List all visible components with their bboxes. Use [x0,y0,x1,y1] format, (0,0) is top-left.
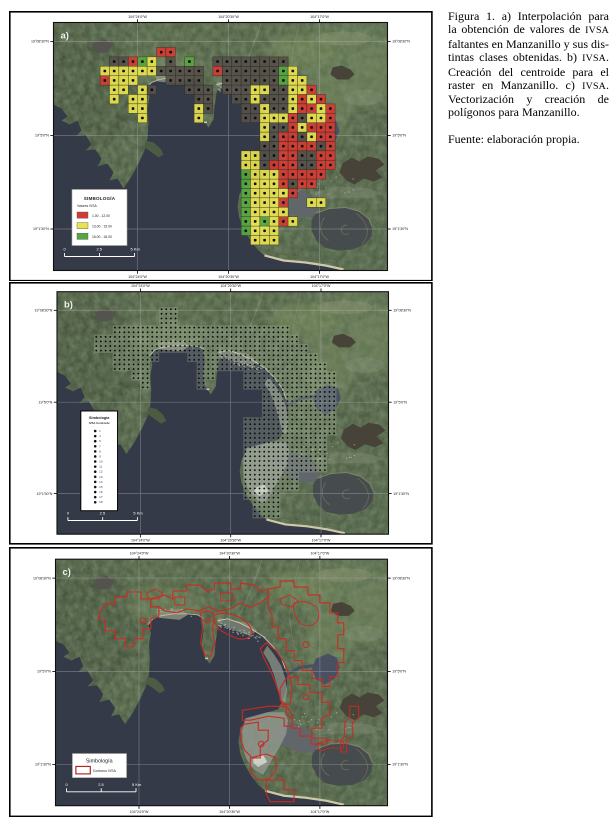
svg-text:10: 10 [99,460,103,464]
svg-text:Valores IVSA: Valores IVSA [77,203,98,207]
svg-text:13: 13 [99,475,103,479]
svg-text:104°24′0″W: 104°24′0″W [131,539,150,543]
svg-text:19°1′30″N: 19°1′30″N [392,763,408,767]
svg-text:2.5: 2.5 [100,511,106,516]
svg-text:19°1′30″N: 19°1′30″N [392,227,408,231]
svg-text:Simbología: Simbología [89,416,110,420]
svg-text:19°5′0″N: 19°5′0″N [35,133,49,137]
svg-text:16: 16 [99,490,103,494]
svg-text:104°24′0″W: 104°24′0″W [130,552,149,556]
svg-text:5 Km: 5 Km [133,511,143,516]
svg-text:1.00 - 12.00: 1.00 - 12.00 [92,213,110,217]
svg-text:104°20′30″W: 104°20′30″W [218,14,239,18]
svg-text:19°5′0″N: 19°5′0″N [392,670,406,674]
svg-text:104°24′0″W: 104°24′0″W [128,14,147,18]
svg-text:104°17′0″W: 104°17′0″W [312,284,331,288]
svg-text:104°17′0″W: 104°17′0″W [311,552,330,556]
svg-text:IVSA Centroide: IVSA Centroide [89,422,110,426]
svg-text:19°5′0″N: 19°5′0″N [393,401,407,405]
svg-text:104°24′0″W: 104°24′0″W [128,274,147,278]
svg-text:Contorno IVSA: Contorno IVSA [93,770,117,774]
svg-text:19°1′30″N: 19°1′30″N [33,227,49,231]
svg-text:104°17′0″W: 104°17′0″W [310,14,329,18]
svg-text:104°24′0″W: 104°24′0″W [131,284,150,288]
svg-text:19°5′0″N: 19°5′0″N [392,133,406,137]
svg-text:15: 15 [99,485,103,489]
svg-text:19°08′30″N: 19°08′30″N [392,39,410,43]
svg-text:5 Km: 5 Km [132,782,142,787]
svg-text:16.00 - 18.00: 16.00 - 18.00 [92,234,112,238]
svg-text:2.5: 2.5 [98,782,104,787]
svg-text:104°20′30″W: 104°20′30″W [218,274,239,278]
svg-text:104°20′30″W: 104°20′30″W [219,552,240,556]
svg-text:104°20′30″W: 104°20′30″W [220,284,241,288]
svg-text:19°1′30″N: 19°1′30″N [35,763,51,767]
svg-text:18: 18 [99,501,103,505]
svg-text:2.5: 2.5 [96,246,102,251]
svg-text:c): c) [62,567,70,578]
svg-text:19°1′30″N: 19°1′30″N [36,492,52,496]
svg-text:12: 12 [99,470,103,474]
svg-text:5 Km: 5 Km [130,246,140,251]
svg-text:14: 14 [99,480,103,484]
svg-text:104°17′0″W: 104°17′0″W [312,539,331,543]
svg-text:a): a) [60,30,68,41]
svg-text:17: 17 [99,495,103,499]
svg-text:104°17′0″W: 104°17′0″W [311,810,330,814]
svg-text:SIMBOLOGÍA: SIMBOLOGÍA [84,193,116,200]
svg-text:104°17′0″W: 104°17′0″W [310,274,329,278]
svg-text:Simbología: Simbología [86,759,113,765]
svg-text:11: 11 [99,465,102,469]
svg-text:104°20′30″W: 104°20′30″W [219,810,240,814]
svg-text:b): b) [64,300,73,310]
svg-text:19°08′30″N: 19°08′30″N [34,309,52,313]
svg-text:104°24′0″W: 104°24′0″W [130,810,149,814]
svg-text:19°08′30″N: 19°08′30″N [33,577,51,581]
svg-text:19°5′0″N: 19°5′0″N [37,670,51,674]
svg-text:19°08′30″N: 19°08′30″N [392,577,410,581]
svg-text:19°08′30″N: 19°08′30″N [31,39,49,43]
svg-text:13.00 - 15.00: 13.00 - 15.00 [92,224,112,228]
svg-text:19°08′30″N: 19°08′30″N [393,309,411,313]
svg-text:19°1′30″N: 19°1′30″N [393,492,409,496]
svg-text:19°5′0″N: 19°5′0″N [38,401,52,405]
svg-text:104°20′30″W: 104°20′30″W [220,539,241,543]
